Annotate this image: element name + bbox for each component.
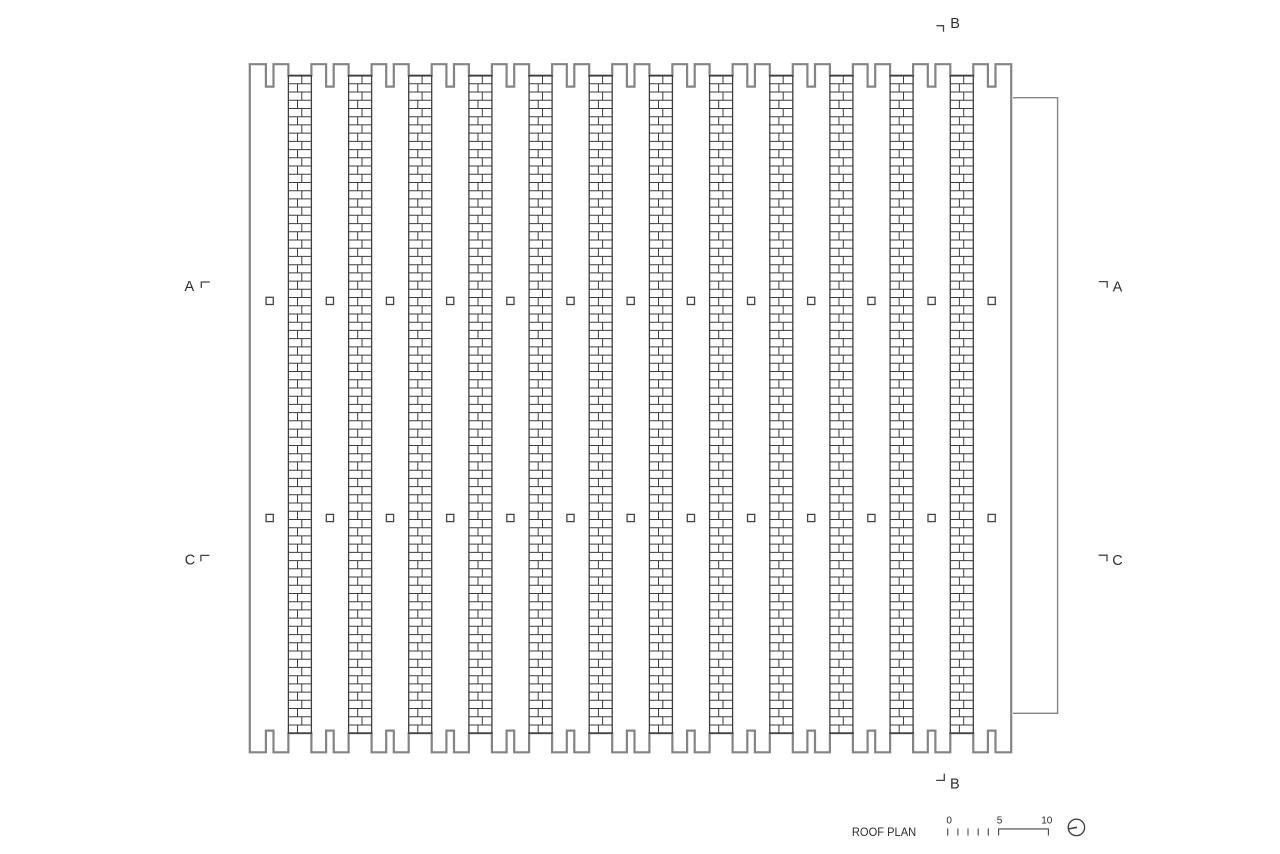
svg-text:10: 10 — [1041, 815, 1053, 826]
svg-text:C: C — [185, 553, 195, 569]
svg-text:5: 5 — [997, 815, 1003, 826]
svg-text:B: B — [950, 16, 960, 32]
svg-text:ROOF PLAN: ROOF PLAN — [852, 825, 916, 839]
svg-text:A: A — [1113, 279, 1123, 295]
svg-text:B: B — [950, 776, 960, 792]
svg-text:0: 0 — [946, 815, 952, 826]
svg-text:C: C — [1112, 553, 1122, 569]
svg-text:A: A — [185, 279, 195, 295]
